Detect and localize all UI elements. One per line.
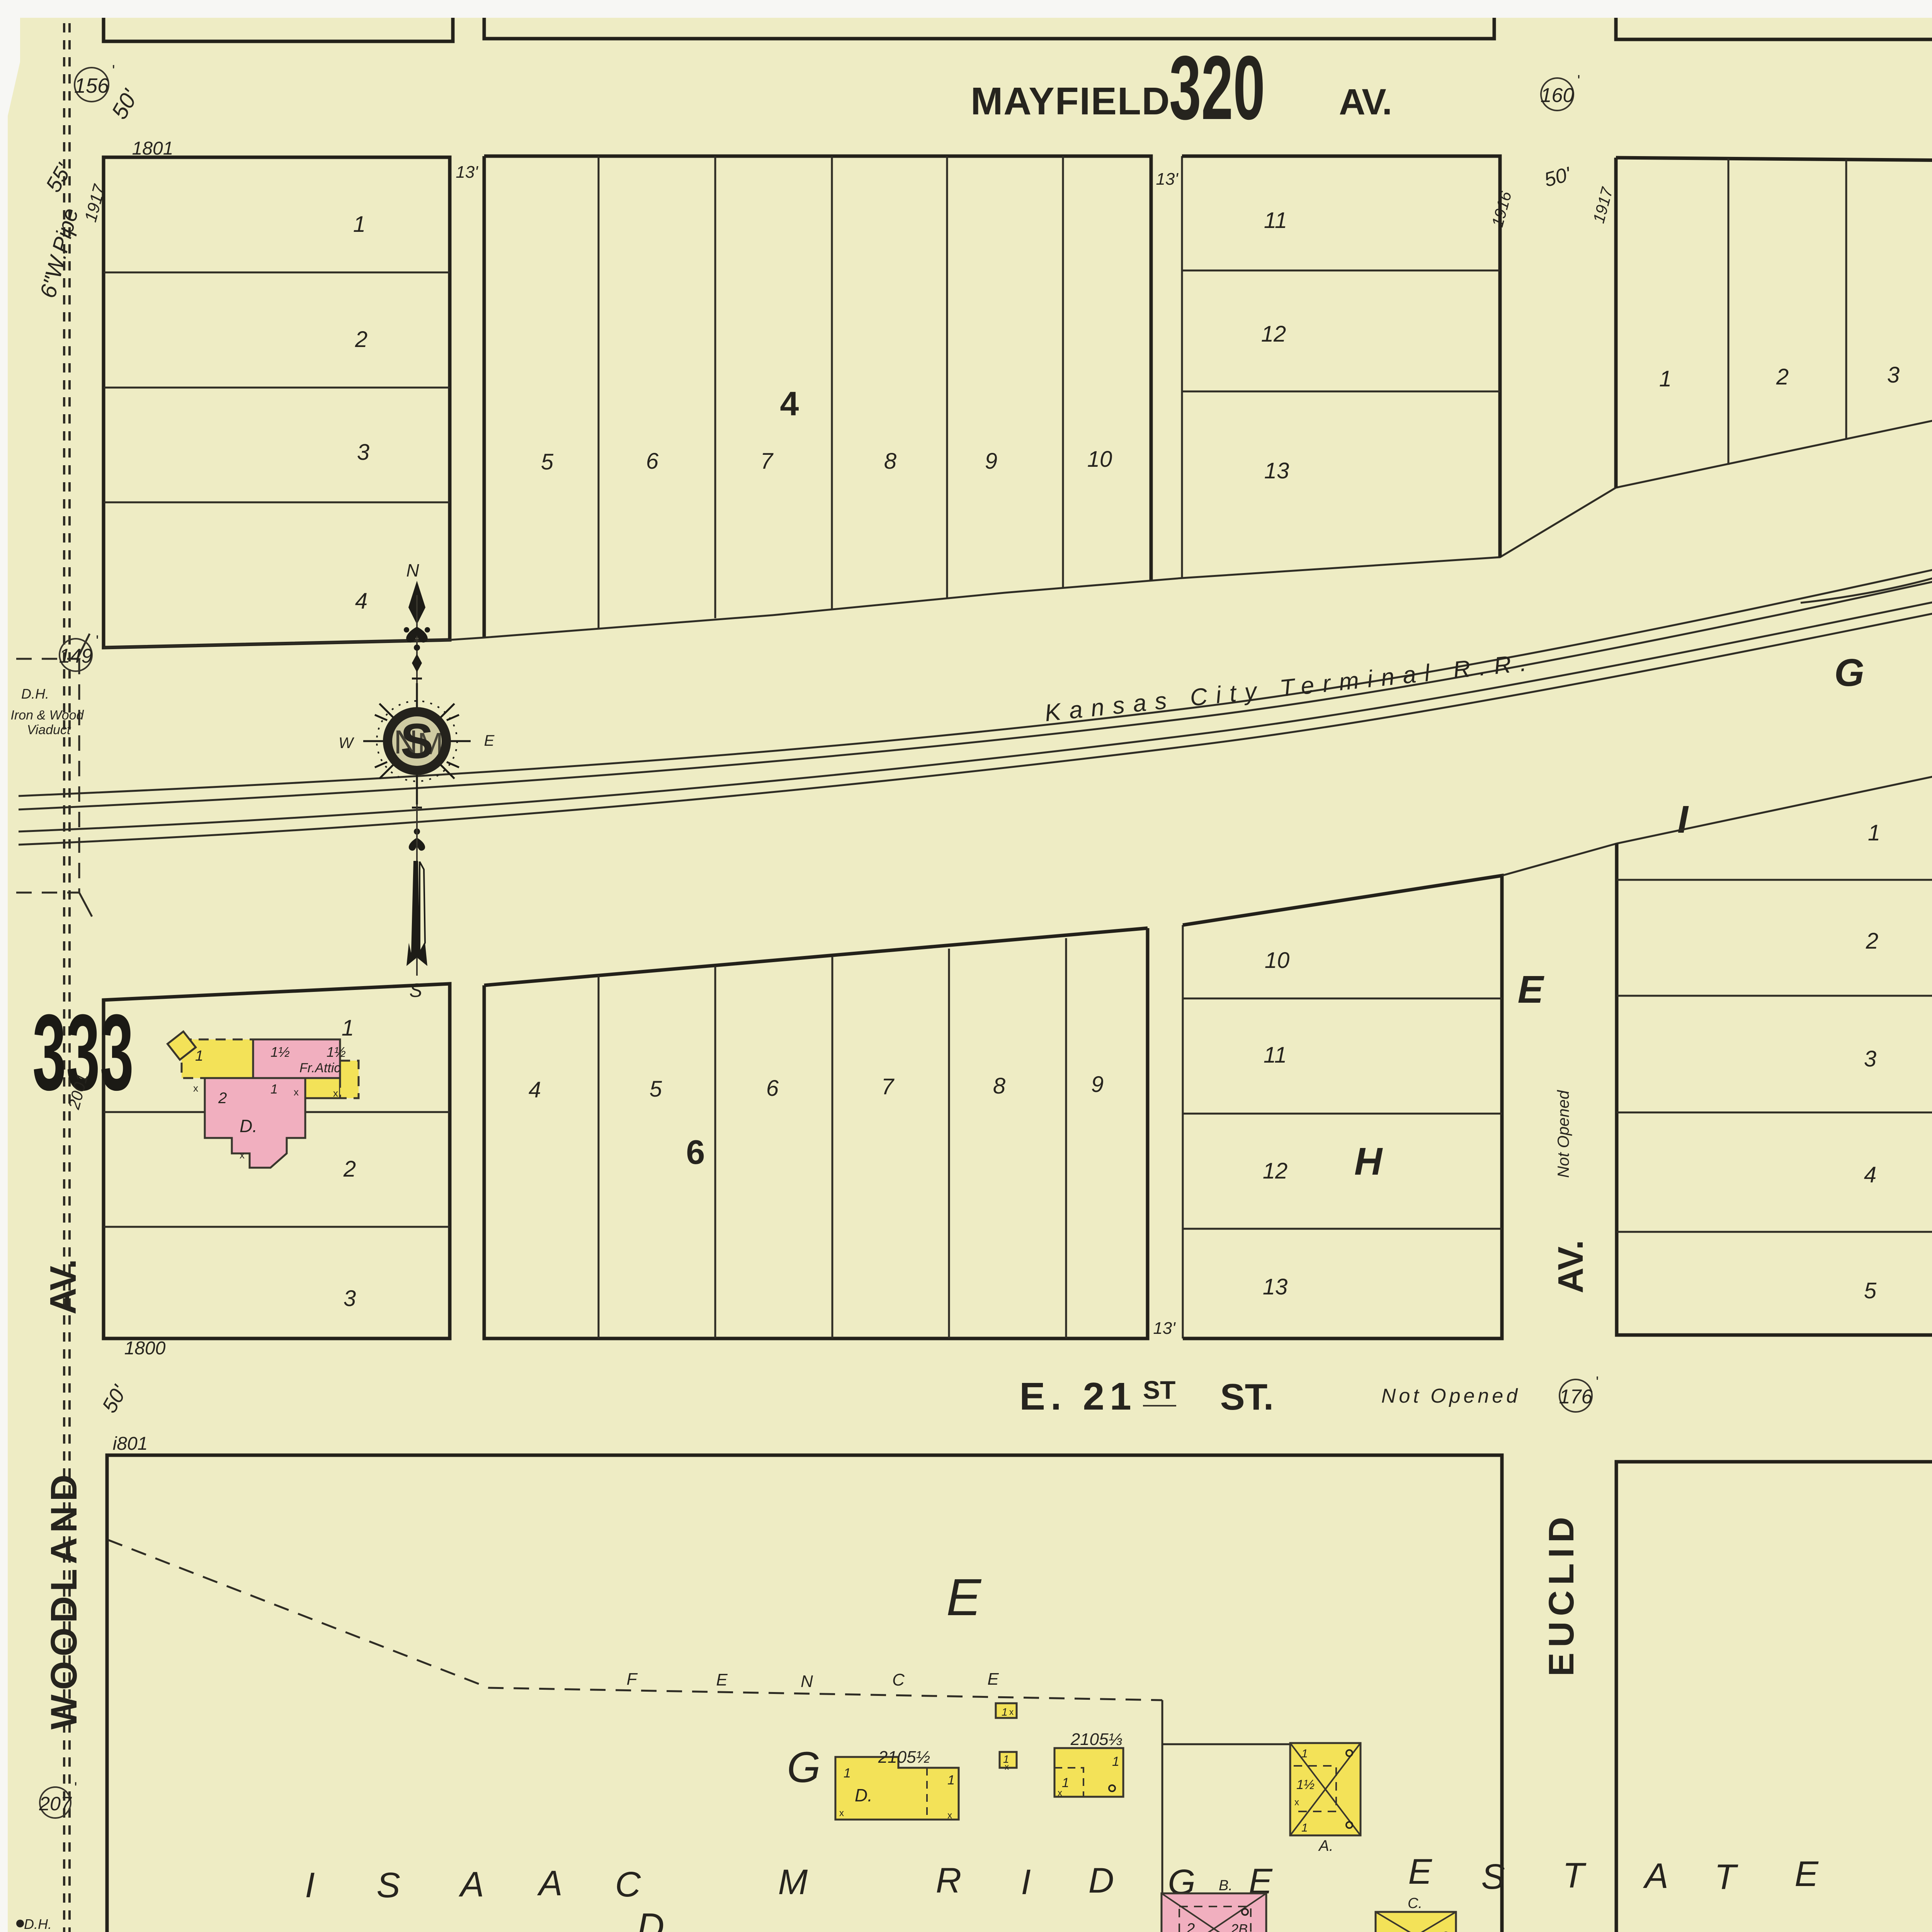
svg-text:A.: A. [1318,1837,1333,1854]
svg-text:A: A [1643,1856,1668,1896]
svg-text:156: 156 [74,74,109,97]
svg-text:x: x [947,1810,952,1821]
svg-text:MAYFIELD: MAYFIELD [971,80,1170,123]
svg-text:E: E [946,1568,982,1626]
svg-text:W: W [338,735,354,752]
svg-text:': ' [96,633,99,650]
svg-text:1: 1 [1062,1776,1069,1790]
svg-text:Viaduct: Viaduct [27,723,71,737]
svg-text:6: 6 [646,449,659,474]
svg-text:1: 1 [1659,366,1672,391]
svg-text:8: 8 [993,1073,1005,1099]
svg-text:1: 1 [1868,820,1880,845]
svg-text:E: E [1408,1852,1432,1891]
svg-text:D.H.: D.H. [21,686,49,702]
svg-text:13: 13 [1263,1274,1288,1299]
svg-text:11: 11 [1264,208,1287,233]
svg-text:AV.: AV. [1551,1240,1590,1293]
svg-text:G: G [1834,651,1864,694]
svg-text:12: 12 [1261,321,1286,347]
svg-text:2B.: 2B. [1230,1921,1252,1932]
svg-text:9: 9 [985,449,997,474]
svg-text:5: 5 [541,449,554,474]
svg-text:1: 1 [1301,1747,1308,1760]
svg-text:i801: i801 [113,1434,148,1454]
svg-text:4: 4 [780,384,799,423]
svg-text:EUCLID: EUCLID [1542,1512,1581,1676]
svg-text:4: 4 [355,588,367,614]
svg-text:I: I [305,1866,315,1905]
svg-text:A: A [458,1865,484,1904]
svg-text:E: E [1794,1854,1819,1894]
svg-text:B.: B. [1219,1878,1233,1894]
svg-text:1: 1 [947,1773,955,1787]
svg-text:E. 21: E. 21 [1019,1375,1137,1418]
svg-text:2105½: 2105½ [878,1748,930,1767]
svg-text:320: 320 [1169,37,1265,138]
svg-text:M: M [778,1862,808,1902]
svg-text:6: 6 [686,1133,705,1171]
svg-text:10: 10 [1087,447,1112,472]
svg-text:WOODLAND: WOODLAND [43,1470,85,1730]
svg-text:C: C [892,1670,905,1689]
svg-text:N: N [801,1672,813,1691]
svg-text:2: 2 [1776,364,1789,389]
svg-text:x: x [1009,1707,1014,1717]
svg-text:x: x [1005,1762,1009,1772]
svg-text:1½: 1½ [270,1044,290,1060]
svg-text:2: 2 [218,1090,227,1107]
svg-text:1: 1 [1002,1706,1008,1718]
svg-text:x: x [294,1086,299,1098]
svg-text:13: 13 [1264,458,1289,483]
svg-text:8: 8 [884,449,896,474]
svg-text:ST: ST [1143,1376,1175,1404]
svg-text:C: C [615,1865,641,1904]
svg-text:1800: 1800 [124,1338,166,1359]
svg-text:10: 10 [1265,948,1290,973]
svg-text:N: N [394,724,418,761]
svg-text:2: 2 [1186,1920,1195,1932]
svg-text:3: 3 [1887,362,1900,388]
svg-text:Not Opened: Not Opened [1381,1385,1520,1407]
svg-text:Not Opened: Not Opened [1554,1090,1572,1178]
svg-text:2: 2 [1866,929,1878,954]
svg-text:x: x [193,1082,198,1094]
svg-text:2: 2 [355,327,367,352]
svg-text:S: S [376,1866,400,1905]
svg-text:D: D [1088,1861,1114,1900]
svg-text:7: 7 [760,449,774,474]
svg-text:1: 1 [844,1766,851,1781]
svg-text:5: 5 [1864,1278,1877,1303]
svg-text:Fr.Attic: Fr.Attic [299,1061,340,1075]
svg-text:3: 3 [1864,1046,1876,1071]
svg-text:D.H.: D.H. [24,1916,52,1932]
svg-text:S: S [409,980,422,1001]
svg-text:9: 9 [1091,1072,1104,1097]
svg-text:2105⅓: 2105⅓ [1070,1730,1123,1749]
svg-text:AV.: AV. [1339,82,1392,122]
svg-text:S: S [1481,1857,1505,1896]
svg-text:N: N [406,560,419,580]
svg-text:13': 13' [1153,1319,1176,1338]
svg-text:x: x [1294,1797,1299,1808]
svg-text:D.: D. [240,1116,257,1136]
svg-text:H: H [1354,1140,1383,1183]
svg-text:E: E [484,732,495,749]
svg-text:1: 1 [1301,1821,1308,1834]
svg-text:D.: D. [855,1785,872,1805]
svg-text:': ' [112,62,115,79]
svg-text:5: 5 [650,1077,662,1102]
svg-text:E: E [1518,968,1545,1011]
svg-text:M: M [418,726,444,761]
svg-text:R: R [936,1861,961,1900]
svg-text:x: x [1058,1788,1062,1798]
svg-text:': ' [1596,1374,1599,1391]
svg-text:x: x [240,1149,245,1161]
svg-text:13': 13' [1156,170,1179,189]
svg-text:4: 4 [529,1077,541,1102]
svg-text:E: E [987,1670,999,1689]
svg-text:x: x [839,1808,844,1818]
svg-text:4: 4 [1864,1162,1876,1187]
svg-text:13': 13' [456,163,478,182]
svg-text:': ' [74,1779,77,1796]
svg-text:3: 3 [344,1286,356,1311]
svg-text:T: T [1563,1856,1587,1895]
svg-text:176: 176 [1559,1386,1593,1408]
svg-text:Iron & Wood: Iron & Wood [11,708,84,723]
svg-text:1½: 1½ [1296,1777,1315,1792]
svg-text:7: 7 [881,1074,895,1099]
svg-text:D: D [637,1905,665,1932]
svg-text:11: 11 [1264,1043,1287,1068]
svg-text:1½: 1½ [327,1044,346,1060]
svg-text:F: F [627,1670,638,1689]
svg-text:207: 207 [39,1793,72,1815]
svg-text:1: 1 [270,1082,278,1097]
svg-text:ST.: ST. [1220,1376,1274,1418]
svg-text:x: x [333,1087,338,1099]
svg-text:C.: C. [1408,1895,1422,1912]
svg-text:': ' [1577,72,1580,89]
svg-text:1: 1 [1112,1754,1119,1769]
svg-text:I: I [1677,798,1689,841]
svg-text:I: I [1021,1862,1031,1902]
svg-text:149: 149 [59,645,93,667]
svg-text:AV.: AV. [43,1259,84,1315]
svg-text:12: 12 [1263,1158,1288,1184]
svg-text:A: A [537,1864,562,1903]
svg-text:1: 1 [353,212,366,237]
svg-text:1: 1 [342,1015,354,1041]
svg-text:2: 2 [343,1156,356,1182]
svg-text:6: 6 [766,1076,779,1101]
svg-text:T: T [1714,1857,1738,1897]
svg-text:E: E [716,1670,728,1689]
svg-text:G: G [787,1743,820,1791]
svg-text:1: 1 [195,1048,203,1064]
svg-text:160: 160 [1541,84,1574,107]
svg-text:3: 3 [357,440,369,465]
